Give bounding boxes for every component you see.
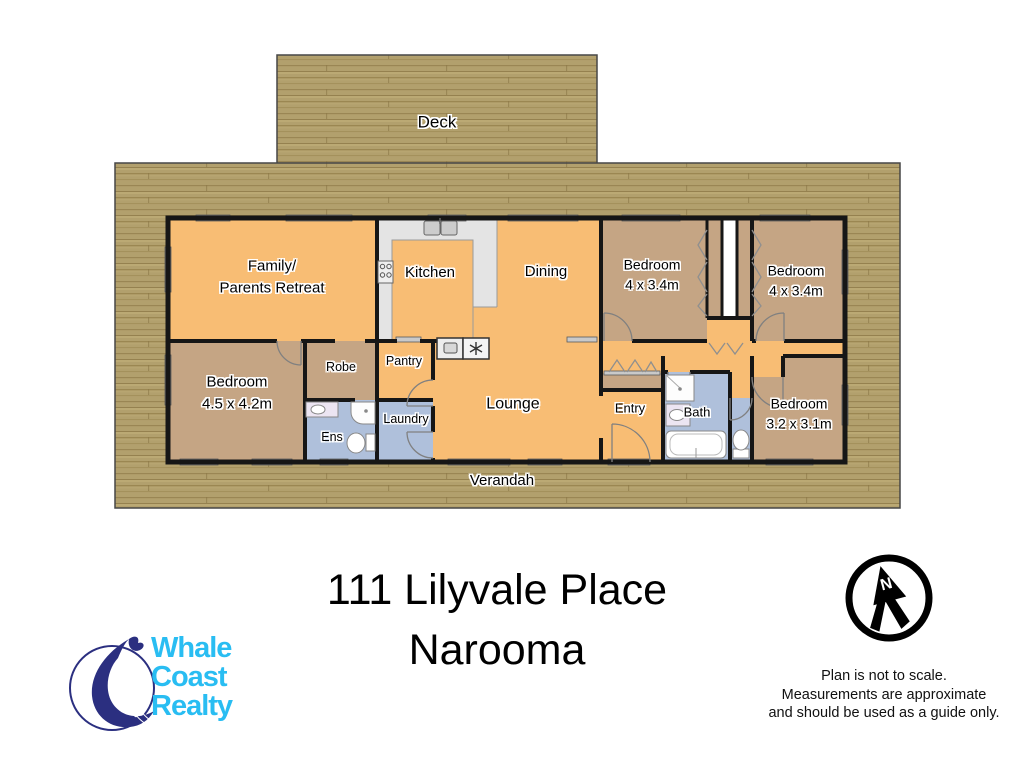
robe-strip-2	[737, 218, 752, 318]
agency-name: Whale Coast Realty	[151, 634, 232, 721]
disclaimer-line3: and should be used as a guide only.	[744, 704, 1024, 723]
property-address: 111 Lilyvale Place Narooma	[197, 560, 797, 680]
disclaimer-line1: Plan is not to scale.	[744, 667, 1024, 686]
whale-logo-icon	[70, 637, 154, 730]
agency-name-line1: Whale	[151, 634, 232, 663]
bedroom4-size: 4.5 x 4.2m	[202, 393, 272, 415]
family-label-line1: Family/	[219, 255, 324, 277]
room-label-deck: Deck	[418, 111, 457, 136]
room-label-lounge: Lounge	[486, 392, 539, 415]
address-street: 111 Lilyvale Place	[197, 560, 797, 620]
disclaimer-text: Plan is not to scale. Measurements are a…	[744, 667, 1024, 723]
bedroom2-size: 4 x 3.4m	[768, 281, 825, 301]
room-label-bedroom3: Bedroom 3.2 x 3.1m	[766, 394, 831, 435]
room-label-robe: Robe	[326, 358, 356, 376]
ensuite-vanity-icon	[306, 402, 338, 417]
pantry-area	[377, 341, 433, 400]
kitchen-floor	[392, 240, 473, 341]
room-label-entry: Entry	[615, 400, 645, 419]
bedroom3-name: Bedroom	[766, 394, 831, 414]
ensuite-shower-icon	[351, 402, 375, 424]
agency-name-line3: Realty	[151, 692, 232, 721]
robe-strip-1	[707, 218, 722, 318]
fridge-icon	[437, 338, 463, 359]
room-label-ens: Ens	[321, 428, 343, 446]
family-label-line2: Parents Retreat	[219, 277, 324, 299]
bedroom1-name: Bedroom	[624, 255, 681, 275]
room-label-kitchen: Kitchen	[405, 262, 455, 284]
room-label-laundry: Laundry	[383, 410, 428, 428]
bedroom2-name: Bedroom	[768, 261, 825, 281]
stove-icon	[378, 261, 393, 283]
room-label-family: Family/ Parents Retreat	[219, 255, 324, 299]
address-suburb: Narooma	[197, 620, 797, 680]
shower-icon	[666, 375, 694, 401]
ensuite-toilet-icon	[347, 433, 375, 453]
room-label-pantry: Pantry	[386, 352, 422, 370]
bedroom4-name: Bedroom	[202, 371, 272, 393]
hall-closet	[603, 373, 661, 390]
hall-niche	[707, 318, 752, 341]
wc-toilet-icon	[733, 430, 749, 458]
cooktop-icon	[463, 338, 489, 359]
bedroom1-size: 4 x 3.4m	[624, 275, 681, 295]
north-compass-icon: N	[849, 558, 929, 638]
agency-name-line2: Coast	[151, 663, 232, 692]
kitchen-sink-icon	[424, 218, 457, 235]
floor-plan-page: N Deck Verandah Family/ Parents Retreat …	[0, 0, 1024, 768]
room-label-verandah: Verandah	[470, 470, 534, 492]
room-label-bedroom1: Bedroom 4 x 3.4m	[624, 255, 681, 296]
room-label-bedroom2: Bedroom 4 x 3.4m	[768, 261, 825, 302]
room-label-bedroom4: Bedroom 4.5 x 4.2m	[202, 371, 272, 415]
room-label-dining: Dining	[525, 261, 568, 283]
bathtub-icon	[666, 431, 726, 458]
bedroom3-size: 3.2 x 3.1m	[766, 414, 831, 434]
room-label-bath: Bath	[684, 404, 711, 423]
disclaimer-line2: Measurements are approximate	[744, 686, 1024, 705]
